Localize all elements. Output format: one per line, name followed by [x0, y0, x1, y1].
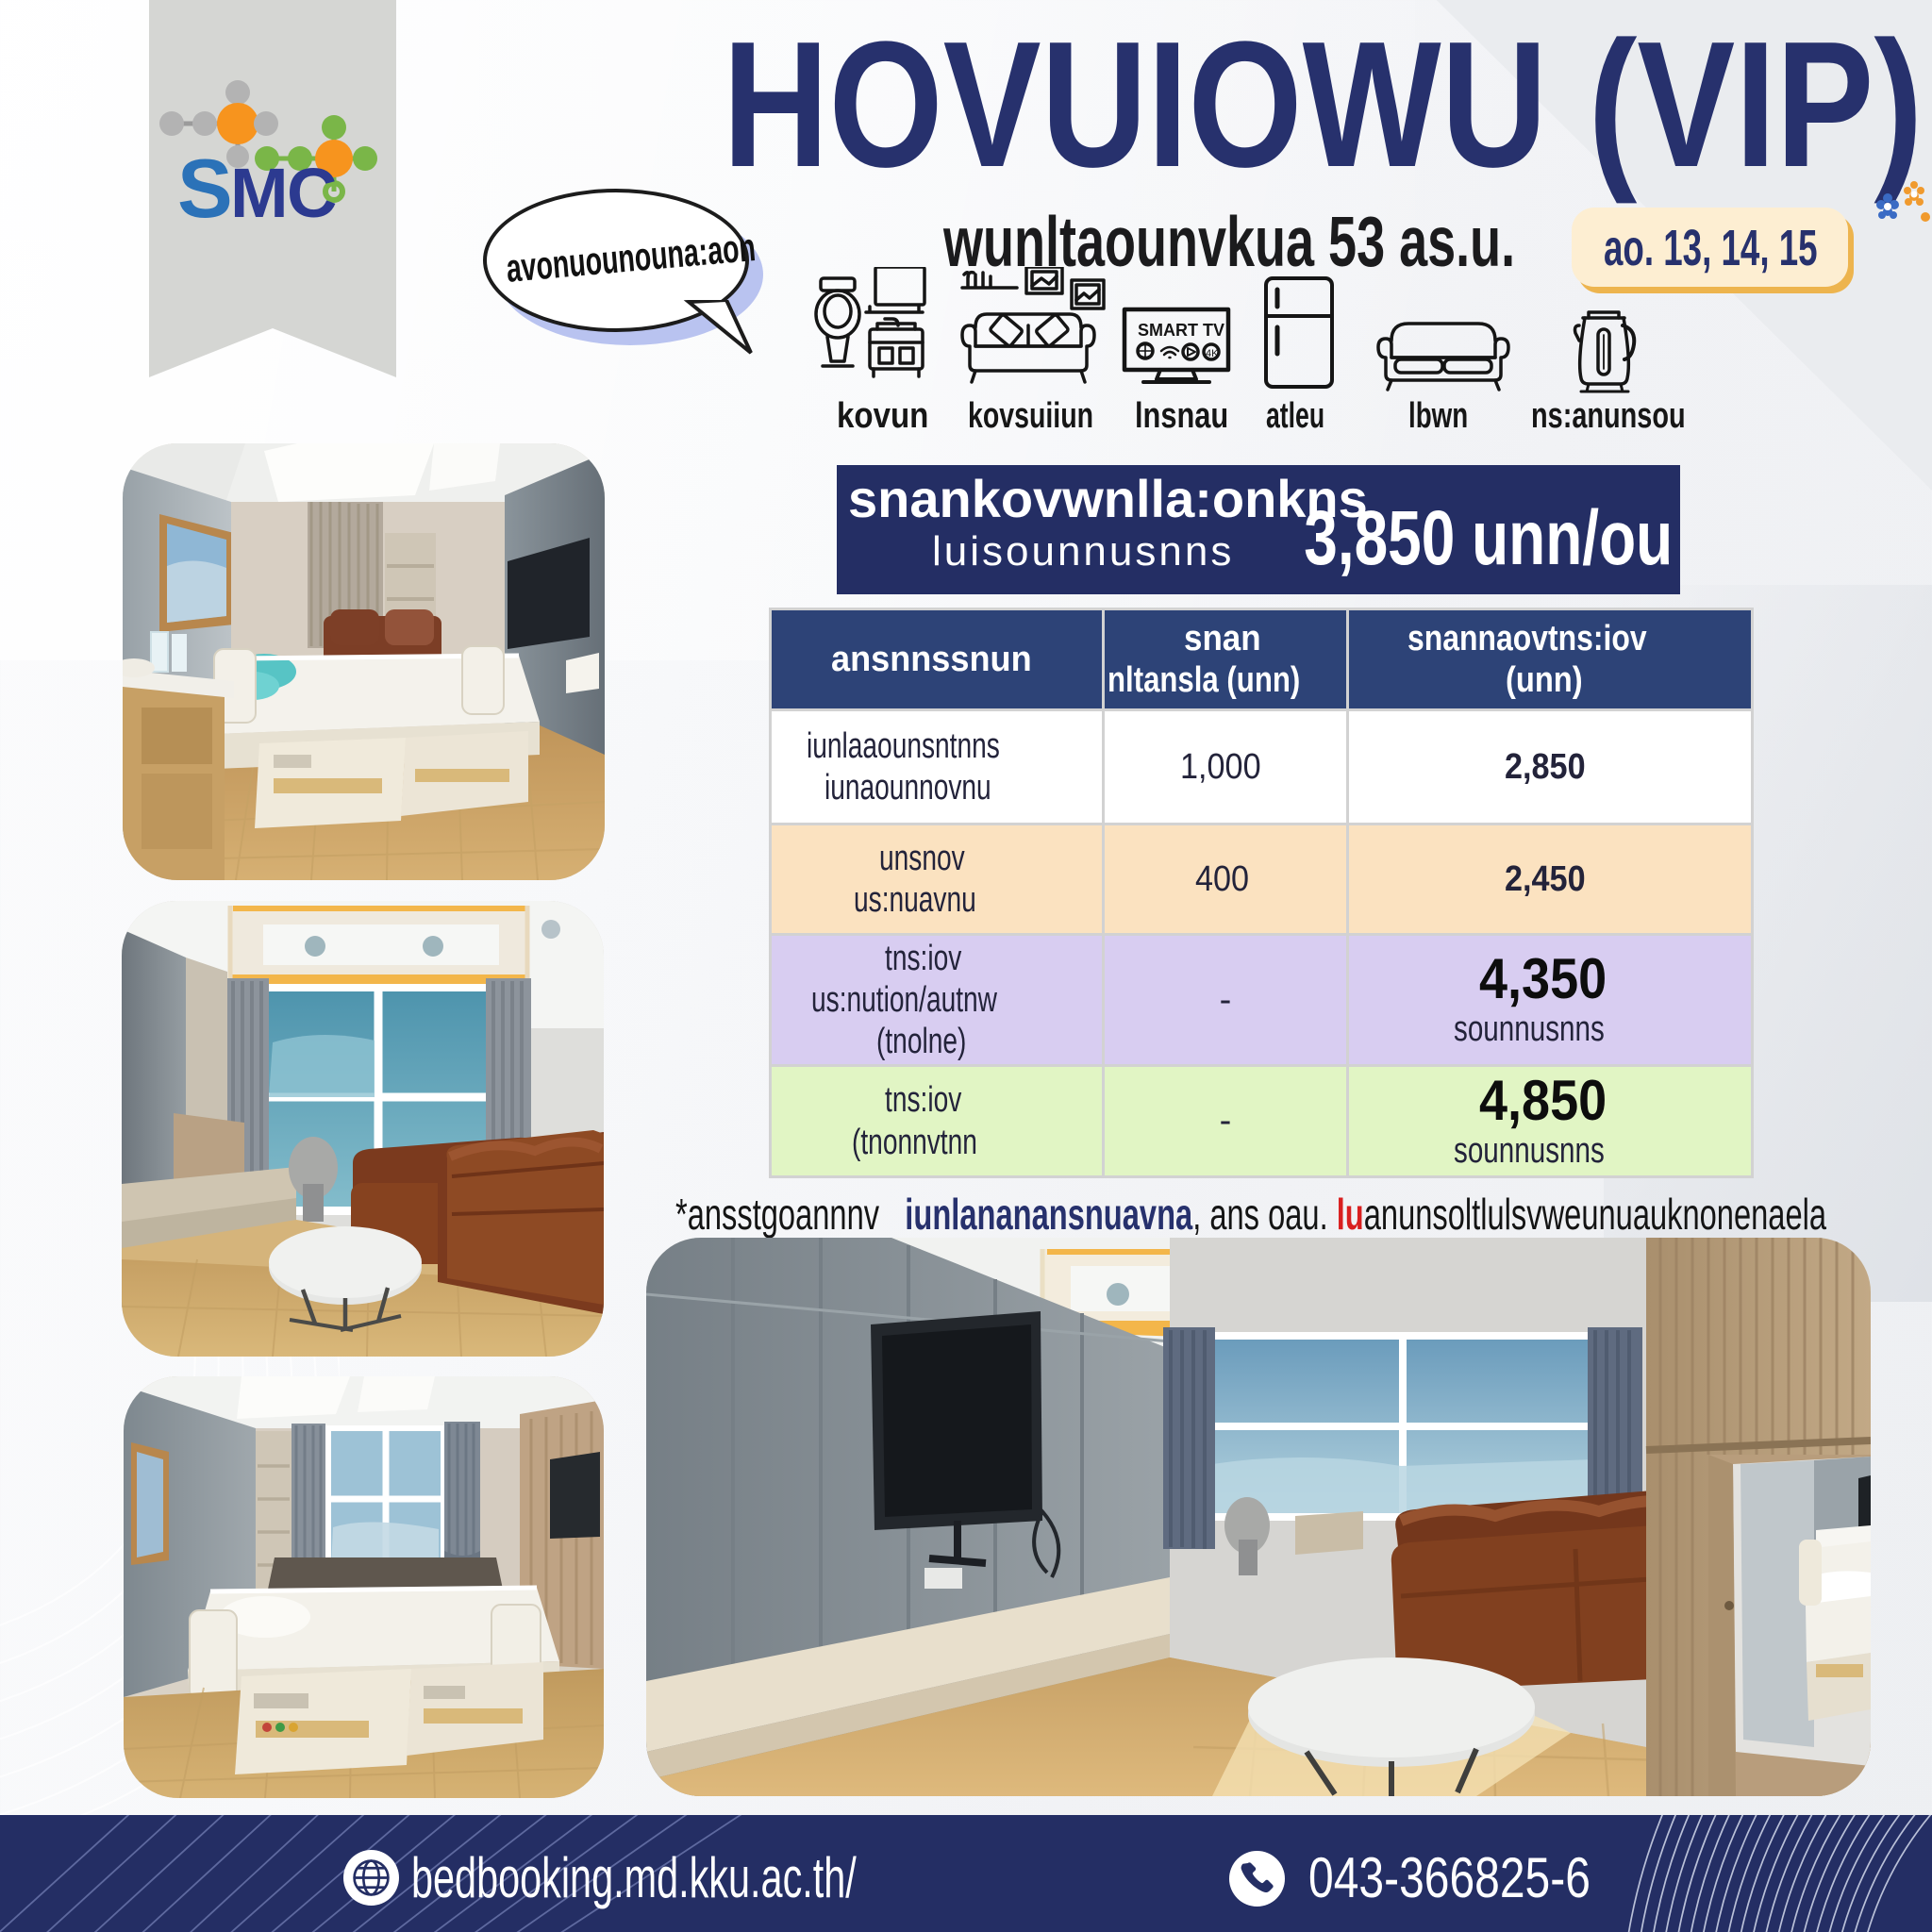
svg-text:4K: 4K — [1206, 348, 1219, 359]
svg-text:SMART TV: SMART TV — [1138, 321, 1224, 340]
svg-text:M: M — [230, 154, 289, 232]
svg-text:S: S — [177, 142, 233, 235]
svg-text:C: C — [287, 154, 337, 232]
